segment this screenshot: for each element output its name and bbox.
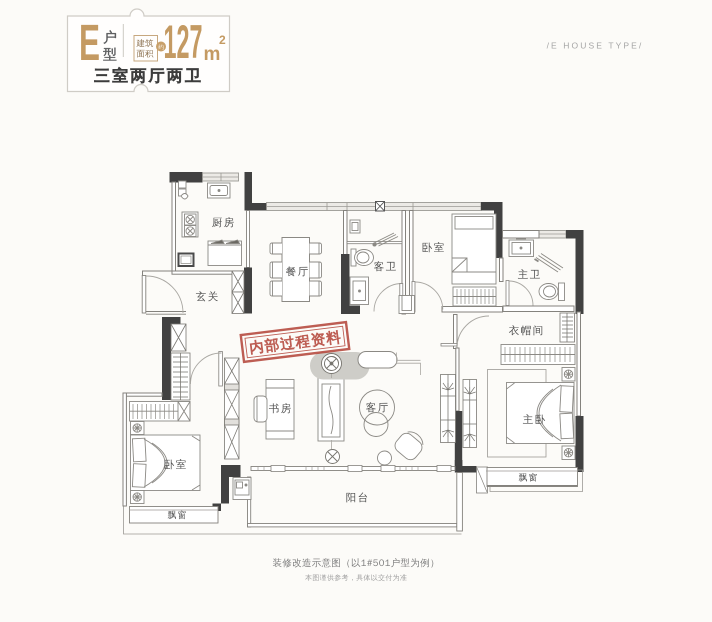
svg-text:2: 2: [219, 33, 226, 47]
svg-text:127: 127: [164, 15, 203, 68]
svg-text:m: m: [204, 44, 221, 65]
svg-text:/E HOUSE TYPE/: /E HOUSE TYPE/: [547, 41, 644, 51]
svg-text:E: E: [79, 14, 100, 71]
